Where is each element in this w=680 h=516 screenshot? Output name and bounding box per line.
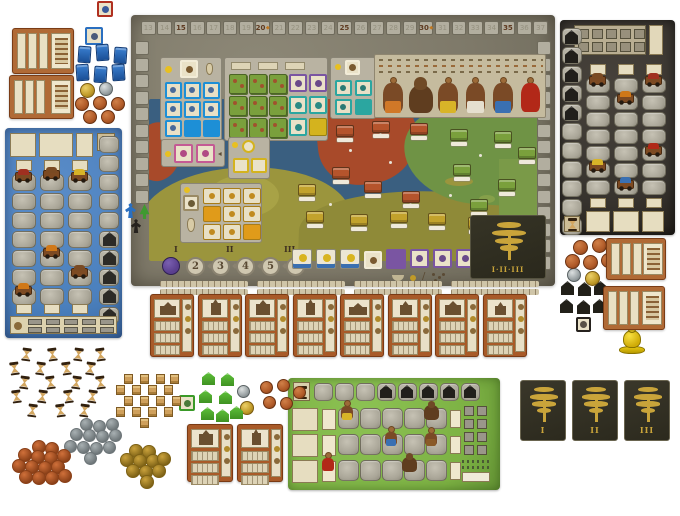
yellow-action-tile[interactable] <box>251 158 267 173</box>
black-framed-tile[interactable] <box>576 317 591 332</box>
stone-space <box>68 288 92 305</box>
city-tile-stack[interactable] <box>249 96 267 116</box>
stone-space <box>586 95 610 110</box>
disc-gray[interactable] <box>64 440 77 453</box>
city-tile-stack[interactable] <box>269 96 287 116</box>
player-aid-card[interactable] <box>606 238 666 280</box>
city-name-label <box>299 197 315 201</box>
crate-token[interactable] <box>140 418 149 428</box>
city-tile-stack[interactable] <box>269 74 287 94</box>
hourglass-token[interactable] <box>27 403 38 417</box>
building-silhouette <box>349 307 367 315</box>
disc-orange[interactable] <box>32 440 46 454</box>
disc-gray[interactable] <box>70 428 83 441</box>
orange-action-tile[interactable] <box>223 206 241 222</box>
round-space: 5 <box>261 257 280 276</box>
hourglass-token[interactable] <box>61 361 72 375</box>
hourglass-token[interactable] <box>95 347 106 361</box>
city-tile-stack[interactable] <box>229 74 247 94</box>
city-token <box>364 181 382 193</box>
purple-action-tile[interactable] <box>410 249 429 268</box>
gear-tile[interactable] <box>183 195 199 211</box>
figure-worker[interactable] <box>491 77 515 115</box>
red-framed-tile[interactable] <box>97 1 113 17</box>
figure-garment <box>342 413 352 420</box>
hourglass-bottom-bar <box>63 372 72 376</box>
city-tile-stack[interactable] <box>249 118 267 138</box>
hourglass-token[interactable] <box>85 361 96 375</box>
orange-action-tile[interactable] <box>203 188 221 204</box>
card-icon <box>280 328 286 334</box>
info-panel <box>292 408 318 431</box>
tile-icon <box>208 106 214 112</box>
orange-action-tile[interactable] <box>243 206 261 222</box>
hourglass-token[interactable] <box>45 375 56 389</box>
pink-action-tile[interactable] <box>174 144 193 163</box>
building-illustration <box>202 299 228 318</box>
black-house-token[interactable] <box>577 300 590 314</box>
hourglass-token[interactable] <box>35 361 46 375</box>
disc-orange[interactable] <box>44 451 58 465</box>
coin-gold[interactable] <box>80 83 95 98</box>
round-track: IIIIII23456 <box>160 245 312 281</box>
black-house-token[interactable] <box>578 282 591 296</box>
wagon-token[interactable] <box>43 170 60 179</box>
building-card[interactable] <box>388 294 432 357</box>
era-card-1[interactable]: I <box>520 380 566 441</box>
wagon-token[interactable] <box>617 180 634 189</box>
wagon-token[interactable] <box>645 76 662 85</box>
building-roof <box>213 299 218 303</box>
building-card[interactable] <box>245 294 289 357</box>
building-card[interactable] <box>483 294 527 357</box>
disc-orange[interactable] <box>25 460 39 474</box>
yellow-action-tile[interactable] <box>233 158 249 173</box>
city-name-label <box>333 180 349 184</box>
figure-bear[interactable] <box>402 453 417 473</box>
blue-action-tile[interactable] <box>203 82 220 99</box>
figure-body <box>521 83 540 112</box>
hourglass-token[interactable] <box>95 375 106 389</box>
hourglass-bottom-bar <box>87 400 96 404</box>
hourglass-top-bar <box>11 389 20 393</box>
hourglass-top-bar <box>89 389 98 393</box>
score-track-cell <box>135 58 149 72</box>
figure-chief[interactable] <box>321 452 335 474</box>
tree-foliage-row <box>532 401 556 406</box>
disc-gold[interactable] <box>129 444 143 458</box>
stone-space <box>404 408 425 429</box>
disc-gray[interactable] <box>106 418 119 431</box>
gold-bonus-tile[interactable] <box>340 249 360 269</box>
disc-orange[interactable] <box>19 470 33 484</box>
coin-gold[interactable] <box>240 401 254 415</box>
storage-square <box>64 319 78 325</box>
teal-action-tile[interactable] <box>355 80 372 96</box>
tally-square <box>477 419 487 429</box>
card-cost-row <box>297 333 323 343</box>
purple-tile-slot <box>386 249 406 269</box>
card-icon <box>328 304 334 310</box>
green-house-token[interactable] <box>199 390 212 403</box>
wagon-token[interactable] <box>15 286 32 295</box>
building-illustration <box>249 299 275 318</box>
bear-head <box>428 401 436 408</box>
route-dot <box>479 154 482 157</box>
card-cost-row <box>344 321 370 331</box>
disc-gray[interactable] <box>96 430 109 443</box>
green-house-token[interactable] <box>201 407 214 420</box>
score-label-tile <box>462 472 490 482</box>
card-cost-row <box>297 345 323 355</box>
disc-orange[interactable] <box>51 460 65 474</box>
coin-gold[interactable] <box>585 271 600 286</box>
hourglass-token[interactable] <box>63 389 74 403</box>
green-house-token[interactable] <box>216 409 229 422</box>
wagon-token[interactable] <box>71 268 88 277</box>
disc-gray[interactable] <box>93 420 106 433</box>
selected-action-tile[interactable] <box>180 60 198 78</box>
green-house-token[interactable] <box>221 373 234 386</box>
black-house-token[interactable] <box>560 299 573 313</box>
blue-action-tile[interactable] <box>165 82 182 99</box>
stone-space <box>40 193 64 210</box>
building-silhouette <box>199 434 213 445</box>
figure-bear[interactable] <box>424 401 439 421</box>
hourglass-top-bar <box>55 403 64 407</box>
blue-framed-tile[interactable] <box>85 27 103 45</box>
gold-bonus-tile[interactable] <box>316 249 336 269</box>
crate-token[interactable] <box>140 396 149 406</box>
card-cost-row <box>249 333 275 343</box>
teal-bonus-tile[interactable] <box>289 118 307 136</box>
disc-gray[interactable] <box>103 441 116 454</box>
figure-worker[interactable] <box>340 400 354 422</box>
hourglass-token[interactable] <box>11 389 22 403</box>
disc-gold[interactable] <box>157 452 171 466</box>
coin-copper[interactable] <box>592 238 607 253</box>
crate-token[interactable] <box>156 374 165 384</box>
tally-square <box>464 419 474 429</box>
coin-silver[interactable] <box>99 82 113 96</box>
tally-square <box>477 445 487 455</box>
stone-space <box>40 269 64 286</box>
teal-bonus-tile[interactable] <box>289 96 307 114</box>
phase-label: I <box>174 245 178 253</box>
disc-gray[interactable] <box>83 429 96 442</box>
building-card[interactable] <box>237 424 283 482</box>
crate-token[interactable] <box>172 396 181 406</box>
aid-card-column <box>619 291 628 325</box>
blue-action-tile[interactable] <box>165 120 182 137</box>
stone-space <box>40 212 64 229</box>
orange-action-tile[interactable] <box>243 188 261 204</box>
city-name-label <box>454 177 470 181</box>
building-card[interactable] <box>435 294 479 357</box>
era-tree-panel: I·II·III <box>470 215 546 279</box>
bonus-dot <box>184 187 190 193</box>
cost-strip <box>354 281 442 287</box>
disc-gray[interactable] <box>84 452 97 465</box>
roof-mark <box>273 79 277 83</box>
blue-action-tile[interactable] <box>184 101 201 118</box>
gold-bonus-tile[interactable] <box>292 249 312 269</box>
city-tile-stack[interactable] <box>269 118 287 138</box>
card-cost-row <box>439 333 465 343</box>
blue-block-token[interactable] <box>75 64 89 82</box>
score-track-cell: 29 <box>403 21 418 35</box>
card-cost-row <box>249 345 275 355</box>
crate-token[interactable] <box>148 385 157 395</box>
disc-gold[interactable] <box>142 445 156 459</box>
figure-garment <box>495 101 511 113</box>
crate-token[interactable] <box>156 396 165 406</box>
hourglass-token[interactable] <box>47 347 58 361</box>
score-track-cell <box>537 173 551 187</box>
coin-copper[interactable] <box>565 254 580 269</box>
era-card-2[interactable]: II <box>572 380 618 441</box>
hourglass-token[interactable] <box>55 403 66 417</box>
roof-mark <box>273 101 277 105</box>
building-card[interactable] <box>340 294 384 357</box>
crate-token[interactable] <box>116 407 125 417</box>
figure-worker[interactable] <box>381 77 405 115</box>
disc-orange[interactable] <box>18 448 32 462</box>
wagon-wheels <box>45 254 58 259</box>
black-house-token[interactable] <box>561 281 574 295</box>
hourglass-token[interactable] <box>73 347 84 361</box>
card-icon <box>280 316 286 322</box>
purple-bonus-tile[interactable] <box>289 74 307 92</box>
player-aid-card[interactable] <box>603 286 665 330</box>
building-card[interactable] <box>198 294 242 357</box>
wagon-token[interactable] <box>645 146 662 155</box>
disc-gold[interactable] <box>120 453 134 467</box>
crate-token[interactable] <box>124 374 133 384</box>
green-house-token[interactable] <box>219 391 232 404</box>
green-framed-tile[interactable] <box>179 395 195 411</box>
disc-gold[interactable] <box>126 464 140 478</box>
orange-action-tile[interactable] <box>223 188 241 204</box>
disc-orange[interactable] <box>57 449 71 463</box>
yellow-bell-piece[interactable] <box>618 326 646 354</box>
wagon-token[interactable] <box>71 172 88 181</box>
score-track-cell: 13 <box>141 21 156 35</box>
teal-action-tile[interactable] <box>335 80 352 96</box>
coin-copper[interactable] <box>75 97 89 111</box>
crate-token[interactable] <box>140 374 149 384</box>
roof-mark <box>253 123 257 127</box>
coin-copper[interactable] <box>93 96 107 110</box>
city-name-label <box>499 192 515 196</box>
hourglass-token[interactable] <box>568 218 577 231</box>
building-card[interactable] <box>187 424 233 482</box>
coin-copper[interactable] <box>573 240 588 255</box>
disc-gold[interactable] <box>140 475 154 489</box>
figure-chief[interactable] <box>519 77 543 115</box>
disc-orange[interactable] <box>38 461 52 475</box>
hourglass-token[interactable] <box>37 389 48 403</box>
city-name-label <box>307 224 323 228</box>
disc-gold[interactable] <box>146 454 160 468</box>
purple-action-tile[interactable] <box>433 249 452 268</box>
orange-tile-slot <box>243 224 261 240</box>
aid-card-column <box>28 33 37 69</box>
storage-square <box>606 42 617 52</box>
wagon-token[interactable] <box>15 172 32 181</box>
crate-token[interactable] <box>116 385 125 395</box>
player-aid-card[interactable] <box>9 75 74 119</box>
coin-silver[interactable] <box>567 268 581 282</box>
city-token <box>298 184 316 196</box>
blue-block-token[interactable] <box>95 44 109 62</box>
crate-token[interactable] <box>170 374 179 384</box>
orange-action-tile[interactable] <box>203 224 221 240</box>
tile-icon <box>315 102 322 109</box>
tree-foliage-row <box>497 222 521 228</box>
card-cost-row <box>344 333 370 343</box>
disc-orange[interactable] <box>45 442 59 456</box>
yellow-bonus-tile[interactable] <box>309 118 327 136</box>
route-dot <box>349 149 352 152</box>
score-track-cell <box>135 74 149 88</box>
coin-copper[interactable] <box>111 97 125 111</box>
crate-token[interactable] <box>164 407 173 417</box>
disc-gray[interactable] <box>109 429 122 442</box>
disc-orange[interactable] <box>12 459 26 473</box>
building-card[interactable] <box>150 294 194 357</box>
figure-worker[interactable] <box>436 77 460 115</box>
city-token <box>428 213 446 225</box>
coin-copper[interactable] <box>583 255 598 270</box>
hourglass-token[interactable] <box>21 347 32 361</box>
stone-space <box>99 174 119 191</box>
green-house-token[interactable] <box>202 372 215 385</box>
orange-tile-slot <box>203 206 221 222</box>
disc-gray[interactable] <box>77 441 90 454</box>
figure-worker[interactable] <box>464 77 488 115</box>
card-cost-row <box>202 321 228 331</box>
cost-strip <box>160 281 248 287</box>
figure-bear[interactable] <box>409 77 433 115</box>
tree-foliage-row <box>641 408 655 413</box>
disc-orange[interactable] <box>32 471 46 485</box>
info-panel <box>39 133 73 157</box>
disc-gold[interactable] <box>152 464 166 478</box>
disc-orange[interactable] <box>31 450 45 464</box>
coin-copper[interactable] <box>263 396 276 409</box>
city-token <box>470 199 488 211</box>
orange-action-tile[interactable] <box>223 224 241 240</box>
disc-gray[interactable] <box>90 442 103 455</box>
blue-block-token[interactable] <box>77 46 91 64</box>
disc-orange[interactable] <box>58 469 72 483</box>
wagon-token[interactable] <box>589 162 606 171</box>
wagon-token[interactable] <box>589 76 606 85</box>
coin-copper[interactable] <box>260 381 273 394</box>
figure-worker[interactable] <box>384 426 398 448</box>
coin-silver[interactable] <box>237 385 250 398</box>
building-roof <box>449 301 457 305</box>
selected-action-tile[interactable] <box>345 60 360 75</box>
hourglass-token[interactable] <box>71 375 82 389</box>
round-space: 2 <box>186 257 205 276</box>
stack-header-label <box>258 62 278 70</box>
crate-token[interactable] <box>148 407 157 417</box>
blue-block-token[interactable] <box>111 64 125 82</box>
score-diamond: ◆ <box>266 26 270 31</box>
wagon-token[interactable] <box>617 94 634 103</box>
stack-header-label <box>231 62 251 70</box>
round-space: 4 <box>236 257 255 276</box>
purple-bonus-tile[interactable] <box>309 74 327 92</box>
disc-gray[interactable] <box>80 418 93 431</box>
city-name-label <box>351 227 367 231</box>
blue-block-token[interactable] <box>113 47 127 65</box>
selected-action-tile[interactable] <box>364 251 382 269</box>
hourglass-sand <box>22 350 30 359</box>
round-marker-purple[interactable] <box>162 257 180 275</box>
wagon-token[interactable] <box>43 248 60 257</box>
stone-space <box>642 112 666 127</box>
teal-bonus-tile[interactable] <box>309 96 327 114</box>
score-track-cell: 31 <box>435 21 450 35</box>
hourglass-top-bar <box>9 361 18 365</box>
hourglass-token[interactable] <box>298 386 307 399</box>
figure-worker[interactable] <box>424 427 438 448</box>
card-icon <box>423 328 429 334</box>
disc-gold[interactable] <box>139 465 153 479</box>
tally-square <box>464 432 474 442</box>
city-tile-stack[interactable] <box>229 96 247 116</box>
building-illustration <box>191 429 219 448</box>
wagon-load <box>592 73 603 79</box>
blue-block-token[interactable] <box>93 66 107 84</box>
score-diamond: ◆ <box>429 26 433 31</box>
score-track-cell: 30◆ <box>419 21 434 35</box>
coin-copper[interactable] <box>101 110 115 124</box>
pink-action-tile[interactable] <box>196 144 215 163</box>
card-cost-row <box>241 475 269 485</box>
hourglass-token[interactable] <box>9 361 20 375</box>
green-house-token[interactable] <box>230 406 243 419</box>
card-icon <box>185 328 191 334</box>
teal-action-tile[interactable] <box>335 99 352 115</box>
disc-orange[interactable] <box>45 471 59 485</box>
city-tile-stack[interactable] <box>249 74 267 94</box>
blue-action-tile[interactable] <box>203 101 220 118</box>
crate-token[interactable] <box>132 407 141 417</box>
card-cost-row <box>487 345 513 355</box>
crate-token[interactable] <box>164 385 173 395</box>
crate-token[interactable] <box>132 385 141 395</box>
blue-action-tile[interactable] <box>165 101 182 118</box>
blue-action-tile[interactable] <box>184 82 201 99</box>
hourglass-token[interactable] <box>79 403 90 417</box>
wagon-wheels <box>619 186 632 191</box>
building-card[interactable] <box>293 294 337 357</box>
hourglass-token[interactable] <box>19 375 30 389</box>
city-tile-stack[interactable] <box>229 118 247 138</box>
era-card-3[interactable]: III <box>624 380 670 441</box>
crate-token[interactable] <box>124 396 133 406</box>
coin-copper[interactable] <box>83 110 97 124</box>
disc-gold[interactable] <box>133 454 147 468</box>
bonus-dot <box>165 66 172 73</box>
city-name-label <box>365 194 381 198</box>
hourglass-token[interactable] <box>87 389 98 403</box>
player-aid-card[interactable] <box>12 28 74 74</box>
